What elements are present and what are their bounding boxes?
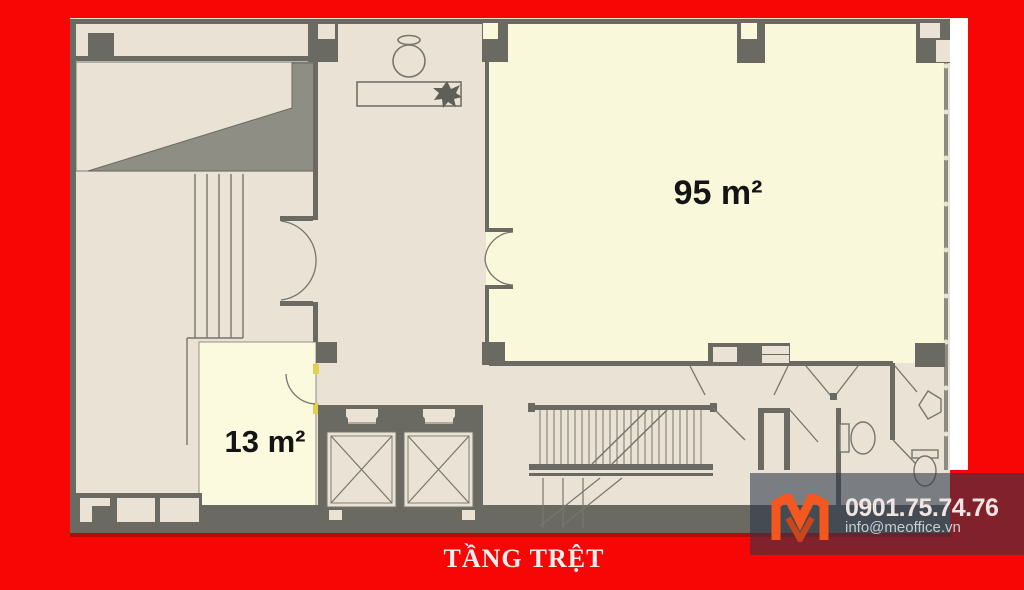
column	[316, 342, 337, 363]
column	[482, 342, 505, 365]
reception-desk	[357, 81, 462, 108]
watermark-phone: 0901.75.74.76	[845, 496, 1020, 521]
bottom-wall-niches	[80, 498, 199, 522]
elevators	[318, 405, 483, 520]
floor-title: TẦNG TRỆT	[374, 544, 674, 574]
elevator-door	[423, 409, 455, 424]
toilet-icon	[840, 422, 875, 454]
page-edge-strip	[950, 18, 968, 470]
window-wall	[944, 20, 949, 470]
meoffice-logo-icon	[771, 494, 829, 542]
elevator-door	[346, 409, 378, 424]
elevator-shaft-2	[404, 432, 473, 507]
column	[88, 33, 114, 58]
small-room-area-label: 13 m²	[190, 426, 340, 457]
page: { "page": { "background_color": "#f80606…	[0, 0, 1024, 590]
column	[915, 343, 945, 367]
main-room-area-label: 95 m²	[618, 176, 818, 210]
watermark-email: info@meoffice.vn	[845, 520, 1020, 535]
watermark-band: 0901.75.74.76 info@meoffice.vn	[750, 473, 1024, 555]
